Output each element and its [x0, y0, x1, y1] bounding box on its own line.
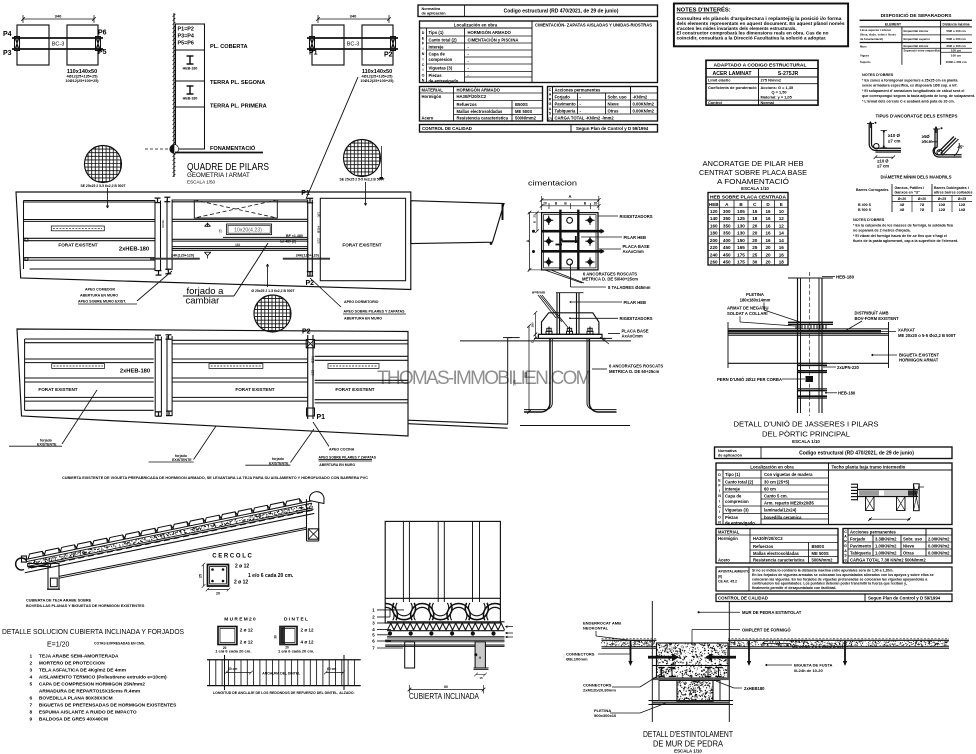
- svg-text:50Ø o 100 cm: 50Ø o 100 cm: [946, 29, 966, 33]
- svg-text:A: A: [725, 202, 729, 207]
- svg-text:F: F: [422, 42, 425, 46]
- svg-text:Tipo (1): Tipo (1): [429, 30, 445, 35]
- svg-text:I: I: [719, 489, 720, 493]
- svg-text:275 N/mm2: 275 N/mm2: [761, 78, 782, 83]
- svg-text:180: 180: [710, 231, 718, 236]
- svg-text:B: B: [564, 202, 567, 206]
- svg-text:E: E: [718, 478, 721, 482]
- svg-text:220: 220: [710, 245, 718, 250]
- svg-text:2 ø 12: 2 ø 12: [301, 628, 314, 633]
- svg-text:I: I: [423, 58, 424, 62]
- svg-text:450: 450: [723, 245, 731, 250]
- svg-text:BIGUETA DE FUSTA: BIGUETA DE FUSTA: [794, 663, 832, 668]
- svg-text:200: 200: [710, 238, 718, 243]
- svg-text:2xHEB-180: 2xHEB-180: [120, 369, 150, 375]
- svg-text:20: 20: [533, 214, 537, 218]
- svg-text:7Ø: 7Ø: [920, 203, 925, 207]
- svg-text:16: 16: [765, 209, 771, 214]
- svg-text:≥5cm: ≥5cm: [922, 139, 933, 144]
- svg-text:TERRA PL. SEGONA: TERRA PL. SEGONA: [210, 80, 265, 86]
- svg-text:* En zones a formigonar superi: * En zones a formigonar superiors a 25x2…: [862, 79, 958, 83]
- svg-text:HA30/F/20/XC3: HA30/F/20/XC3: [753, 536, 783, 541]
- svg-text:20: 20: [765, 260, 771, 265]
- svg-text:1: 1: [30, 654, 33, 660]
- svg-text:no separarà de 2 metres d'alça: no separarà de 2 metres d'alçada.: [853, 229, 911, 233]
- svg-text:150: 150: [737, 238, 745, 243]
- svg-text:CARGA TOTAL 7.38 KN/m2: CARGA TOTAL 7.38 KN/m2 500N/mm2: [850, 558, 926, 563]
- svg-text:340: 340: [55, 14, 62, 19]
- svg-text:180: 180: [531, 322, 535, 327]
- svg-text:0.00KN/m2: 0.00KN/m2: [928, 543, 950, 548]
- svg-text:HEB-180: HEB-180: [183, 97, 198, 101]
- svg-text:P3=P4: P3=P4: [178, 34, 194, 40]
- svg-text:I: I: [423, 68, 424, 72]
- svg-text:-: -: [468, 59, 470, 64]
- svg-text:C: C: [844, 530, 847, 534]
- svg-text:500N/mm2: 500N/mm2: [812, 558, 834, 563]
- svg-text:finalmente,permitir el desapun: finalmente,permitir el desapuntalado con…: [752, 586, 836, 590]
- svg-text:Murs: Murs: [860, 45, 867, 49]
- svg-text:5: 5: [30, 682, 33, 688]
- svg-text:HEB-180: HEB-180: [183, 67, 198, 71]
- svg-text:Distància màxima: Distància màxima: [943, 22, 970, 26]
- svg-text:PILAR HEB: PILAR HEB: [624, 235, 647, 240]
- svg-text:24K(120+120): 24K(120+120): [171, 253, 195, 257]
- svg-text:BC-3: BC-3: [347, 42, 360, 48]
- svg-text:Pavimento: Pavimento: [555, 101, 577, 106]
- svg-text:BOV-FORM EXISTENT: BOV-FORM EXISTENT: [855, 316, 900, 321]
- svg-text:altres barres corbades: altres barres corbades: [934, 191, 973, 195]
- svg-text:Canto 5 cm.: Canto 5 cm.: [764, 494, 788, 499]
- svg-text:B500S: B500S: [812, 544, 825, 549]
- svg-text:1.00KN/m2: 1.00KN/m2: [875, 543, 897, 548]
- svg-text:175: 175: [737, 252, 745, 257]
- svg-text:≥7 cm: ≥7 cm: [888, 139, 901, 144]
- svg-text:M U R E M 2 0: M U R E M 2 0: [224, 617, 256, 623]
- svg-text:continuacion los apuntalados.: continuacion los apuntalados. Los puntal…: [752, 582, 907, 586]
- svg-text:(7): (7): [548, 117, 552, 121]
- svg-text:C: C: [549, 88, 552, 92]
- svg-text:muro: muro: [161, 220, 165, 228]
- svg-text:Ganxos, Patilles i: Ganxos, Patilles i: [895, 186, 925, 190]
- svg-text:APUNTALAMIENTO: APUNTALAMIENTO: [718, 570, 750, 574]
- svg-text:DISTRIBUÏT AMB: DISTRIBUÏT AMB: [855, 311, 889, 316]
- svg-text:DE MUR DE PEDRA: DE MUR DE PEDRA: [653, 740, 723, 749]
- svg-text:* En la calçaveta de les masse: * En la calçaveta de les masses de formi…: [853, 224, 954, 228]
- svg-text:50Ø o 100 cm: 50Ø o 100 cm: [946, 37, 966, 41]
- svg-text:140: 140: [710, 216, 718, 221]
- svg-text:cimentacion: cimentacion: [528, 179, 577, 188]
- svg-text:Resistencia caracteristica: Resistencia caracteristica: [457, 116, 509, 121]
- svg-text:Refuerzos: Refuerzos: [753, 544, 774, 549]
- svg-text:14: 14: [779, 231, 785, 236]
- svg-text:laminada/12x24): laminada/12x24): [764, 508, 797, 513]
- svg-text:FONAMENTACIÓ: FONAMENTACIÓ: [210, 144, 256, 152]
- svg-text:Normativa: Normativa: [422, 7, 441, 11]
- svg-text:FORAT EXISTENT: FORAT EXISTENT: [335, 387, 374, 392]
- svg-text:DETALL D'ESTINTOLAMENT: DETALL D'ESTINTOLAMENT: [643, 730, 733, 739]
- svg-text:ADAPTADO A CODIGO ESTRUCTUR: ADAPTADO A CODIGO ESTRUCTURAL: [714, 62, 807, 68]
- svg-text:AxAxCmm: AxAxCmm: [623, 249, 644, 254]
- svg-text:-: -: [580, 94, 582, 99]
- svg-text:Tabiqueria: Tabiqueria: [555, 108, 577, 113]
- svg-text:160: 160: [710, 223, 718, 228]
- svg-text:350: 350: [723, 216, 731, 221]
- svg-text:Viguetas (3): Viguetas (3): [725, 508, 749, 513]
- svg-text:2xHEB180: 2xHEB180: [744, 686, 765, 691]
- svg-text:Intereje: Intereje: [725, 486, 741, 491]
- svg-text:TELA ASFALTICA DE 4Kg/m2 DE 4m: TELA ASFALTICA DE 4Kg/m2 DE 4mm: [39, 668, 126, 674]
- svg-text:18: 18: [779, 260, 785, 265]
- svg-text:1: 1: [372, 608, 375, 613]
- svg-text:2 ø 12: 2 ø 12: [240, 628, 253, 633]
- svg-text:compresion: compresion: [429, 57, 453, 62]
- svg-text:P6: P6: [98, 30, 107, 37]
- svg-text:Acciones permanentes: Acciones permanentes: [850, 530, 897, 535]
- svg-text:HEB SOBRE PLACA CENTRADA: HEB SOBRE PLACA CENTRADA: [710, 194, 787, 199]
- svg-text:Mallas electrosoldadas: Mallas electrosoldadas: [753, 551, 800, 556]
- svg-text:Mallas electrosoldadas: Mallas electrosoldadas: [457, 109, 504, 114]
- svg-text:MUR DE PEDRA ESTINTOLAT: MUR DE PEDRA ESTINTOLAT: [742, 610, 802, 615]
- svg-text:400: 400: [723, 238, 731, 243]
- svg-text:D: D: [718, 473, 721, 477]
- svg-text:CUBIERTA INCLINADA: CUBIERTA INCLINADA: [409, 692, 480, 701]
- svg-text:10Ø12(25+100+25): 10Ø12(25+100+25): [360, 79, 394, 83]
- svg-text:-: -: [468, 44, 470, 49]
- svg-text:5: 5: [372, 632, 375, 637]
- svg-text:GEOMETRIA I ARMAT: GEOMETRIA I ARMAT: [187, 172, 250, 179]
- svg-text:Tipo (1): Tipo (1): [725, 472, 741, 477]
- svg-text:Capa de: Capa de: [429, 52, 446, 57]
- svg-text:Nieve: Nieve: [903, 543, 915, 548]
- svg-text:260: 260: [710, 260, 718, 265]
- svg-text:XARXAT: XARXAT: [898, 328, 915, 333]
- svg-text:14: 14: [779, 238, 785, 243]
- svg-text:Segun Plan de Control y D 59/1: Segun Plan de Control y D 59/1994: [576, 126, 649, 131]
- svg-text:CAPA DE COMPRESION HORMIGON 25: CAPA DE COMPRESION HORMIGON 25N/mm2: [39, 682, 145, 688]
- svg-text:12: 12: [779, 216, 785, 221]
- svg-text:B 500 S: B 500 S: [858, 208, 872, 212]
- svg-text:HORMIGÓN ARMADO: HORMIGÓN ARMADO: [457, 88, 501, 93]
- svg-text:240: 240: [710, 252, 718, 257]
- svg-text:3: 3: [372, 621, 375, 626]
- svg-text:Ø8L100mm: Ø8L100mm: [566, 657, 588, 662]
- svg-text:Separació entre emparrillats: Separació entre emparrillats: [904, 49, 942, 53]
- svg-text:A: A: [549, 107, 552, 111]
- svg-text:60 cm: 60 cm: [228, 667, 237, 671]
- svg-text:0.00KN/m2: 0.00KN/m2: [633, 108, 655, 113]
- svg-text:S-275JR: S-275JR: [778, 71, 799, 77]
- svg-text:ANCORATGE DE PILAR HEB: ANCORATGE DE PILAR HEB: [703, 159, 804, 168]
- svg-text:20: 20: [765, 245, 771, 250]
- svg-text:20: 20: [765, 252, 771, 257]
- svg-text:CONTROL DE CALIDAD: CONTROL DE CALIDAD: [718, 596, 768, 601]
- svg-text:ESCALA 1/10: ESCALA 1/10: [741, 186, 769, 191]
- svg-text:3.38KN/m2: 3.38KN/m2: [875, 536, 897, 541]
- svg-text:I: I: [423, 47, 424, 51]
- svg-text:BOVEDILLAS PLANAS Y BIGUETA: BOVEDILLAS PLANAS Y BIGUETAS DE HORMIGON…: [26, 604, 145, 608]
- svg-text:16: 16: [765, 216, 771, 221]
- svg-text:175: 175: [737, 260, 745, 265]
- svg-text:2xM12b/20,80mm: 2xM12b/20,80mm: [583, 688, 616, 693]
- svg-text:600: 600: [524, 372, 528, 378]
- svg-text:-: -: [580, 101, 582, 106]
- svg-text:0L24h de 10-20: 0L24h de 10-20: [794, 668, 823, 673]
- svg-text:9: 9: [479, 656, 481, 660]
- svg-text:E=1/20: E=1/20: [47, 642, 69, 649]
- svg-text:Hormigón: Hormigón: [422, 94, 442, 99]
- svg-text:AISLAMIENTO TERMICO (Poliestir: AISLAMIENTO TERMICO (Poliestireno extrui…: [39, 675, 167, 681]
- svg-text:450: 450: [723, 252, 731, 257]
- svg-text:APEO SOBRE PILARES Y ZAPATAS: APEO SOBRE PILARES Y ZAPATAS: [319, 455, 377, 459]
- svg-text:PILAR HEB: PILAR HEB: [624, 300, 647, 305]
- svg-text:A: A: [844, 549, 847, 553]
- svg-text:D: D: [422, 31, 425, 35]
- svg-text:FORAT EXISTENT: FORAT EXISTENT: [38, 387, 77, 392]
- svg-text:sense armadura específica, es: sense armadura específica, es disposarà …: [862, 84, 957, 88]
- svg-text:ME 500S: ME 500S: [812, 551, 829, 556]
- svg-text:ESCALA 1/10: ESCALA 1/10: [792, 439, 820, 444]
- svg-text:HORMIGÓN ARMADO: HORMIGÓN ARMADO: [468, 30, 512, 35]
- svg-text:Llosa superior i inferior: Llosa superior i inferior: [860, 28, 892, 32]
- svg-text:350: 350: [723, 231, 731, 236]
- svg-text:Refuerzos: Refuerzos: [457, 102, 478, 107]
- svg-text:ANCHURA DEL DINTEL: ANCHURA DEL DINTEL: [262, 672, 300, 676]
- svg-text:N: N: [422, 52, 425, 56]
- svg-text:Emparrillat superior: Emparrillat superior: [904, 37, 931, 41]
- svg-text:4: 4: [30, 675, 33, 681]
- svg-text:SE 25x25 2 5-5 6x2,2 B 500T: SE 25x25 2 5-5 6x2,2 B 500T: [80, 184, 126, 188]
- svg-text:14Ø: 14Ø: [959, 208, 966, 212]
- svg-text:DISPOSICIÓ DE SEPARADORS: DISPOSICIÓ DE SEPARADORS: [881, 11, 953, 19]
- svg-text:de aplicación: de aplicación: [718, 454, 743, 458]
- svg-text:30Ø o 100 cm: 30Ø o 100 cm: [946, 44, 966, 48]
- svg-text:Codigo estructural (RD 470/202: Codigo estructural (RD 470/2021, de 29 d…: [504, 9, 619, 15]
- svg-text:BF ×1,480: BF ×1,480: [286, 234, 303, 238]
- svg-text:Ø>25: Ø>25: [958, 197, 967, 201]
- svg-text:25: 25: [219, 229, 223, 233]
- svg-text:CONTROL DE CALIDAD: CONTROL DE CALIDAD: [422, 126, 472, 131]
- svg-text:ABERTURA EN MURO: ABERTURA EN MURO: [344, 317, 382, 321]
- svg-text:105: 105: [737, 209, 745, 214]
- svg-text:I: I: [719, 500, 720, 504]
- svg-text:4Ø: 4Ø: [900, 203, 905, 207]
- svg-text:Ø>20: Ø>20: [918, 197, 927, 201]
- svg-text:DETALL D'UNIÓ DE JASSERES: DETALL D'UNIÓ DE JASSERES I PILARS: [734, 420, 879, 429]
- svg-text:Viguetas (3): Viguetas (3): [429, 66, 453, 71]
- svg-text:Localización en obra: Localización en obra: [454, 23, 498, 28]
- svg-text:25: 25: [199, 574, 203, 578]
- svg-text:2xHEB-180: 2xHEB-180: [119, 247, 149, 253]
- svg-text:APEO COCINA: APEO COCINA: [329, 448, 355, 452]
- svg-text:NEOKONTAL: NEOKONTAL: [583, 626, 609, 631]
- svg-text:HEB: HEB: [311, 356, 315, 364]
- svg-text:Emparrillat inferior: Emparrillat inferior: [904, 44, 930, 48]
- svg-text:B: B: [555, 202, 558, 206]
- svg-text:P2: P2: [384, 52, 393, 59]
- svg-text:FORAT EXISTENT: FORAT EXISTENT: [235, 387, 274, 392]
- svg-text:Suports: Suports: [860, 60, 871, 64]
- svg-text:CUBIERTA EXISTENTE DE VIGUETA: CUBIERTA EXISTENTE DE VIGUETA PREFABRICA…: [62, 475, 368, 480]
- svg-text:100 cm: 100 cm: [951, 54, 962, 58]
- svg-text:Ø<25: Ø<25: [938, 197, 947, 201]
- svg-text:10Ø: 10Ø: [939, 203, 946, 207]
- svg-text:FORAT EXISTENT: FORAT EXISTENT: [58, 243, 97, 248]
- svg-text:-: -: [468, 66, 470, 71]
- svg-text:C: C: [718, 505, 721, 509]
- svg-text:-KN/m2: -KN/m2: [633, 94, 648, 99]
- svg-text:BALDOSA DE GRES 40X40CM: BALDOSA DE GRES 40X40CM: [39, 717, 108, 723]
- svg-text:Forjado: Forjado: [850, 536, 866, 541]
- svg-text:2 ø 12: 2 ø 12: [240, 640, 253, 645]
- svg-text:Acero: Acero: [718, 558, 730, 563]
- svg-text:NOTES D'INTERÉS:: NOTES D'INTERÉS:: [677, 6, 731, 14]
- svg-text:A: A: [549, 93, 552, 97]
- svg-text:Limit elàstic: Limit elàstic: [708, 78, 731, 83]
- svg-text:Forjado: Forjado: [555, 94, 571, 99]
- svg-text:R: R: [844, 539, 847, 543]
- svg-text:Ø 25x25 2 1-5 6x2,2 B 500T: Ø 25x25 2 1-5 6x2,2 B 500T: [251, 289, 295, 293]
- svg-text:de fonamentació): de fonamentació): [860, 37, 883, 41]
- svg-text:ME 20x20 o 5-5 6x2,2 B 500T: ME 20x20 o 5-5 6x2,2 B 500T: [792, 644, 847, 649]
- svg-text:100Ø o 200 cm: 100Ø o 200 cm: [945, 60, 966, 64]
- svg-text:10: 10: [779, 209, 785, 214]
- svg-text:P2: P2: [302, 329, 311, 336]
- svg-text:7: 7: [30, 703, 33, 709]
- svg-text:colocaran las viguetas. En los: colocaran las viguetas. En los forjados …: [752, 577, 927, 581]
- svg-text:METRICA D. DE 60+25cm: METRICA D. DE 60+25cm: [609, 369, 660, 374]
- svg-text:HA30/F/20/XC2: HA30/F/20/XC2: [457, 94, 487, 99]
- svg-text:9: 9: [30, 717, 33, 723]
- svg-text:MORTERO DE PROTECCION: MORTERO DE PROTECCION: [39, 661, 105, 667]
- svg-text:APEO SOBRE MURO EXIST.: APEO SOBRE MURO EXIST.: [78, 300, 126, 304]
- svg-text:Ganxos en "U": Ganxos en "U": [895, 191, 921, 195]
- svg-text:DIÀMETRE MÍNIM DELS MANDRIL: DIÀMETRE MÍNIM DELS MANDRILS: [881, 173, 952, 180]
- svg-text:TIPUS D'ANCORATGE DELS ESTRE: TIPUS D'ANCORATGE DELS ESTREPS: [876, 114, 958, 119]
- svg-text:En los forjados de viguetas ar: En los forjados de viguetas armadas se c…: [752, 573, 934, 577]
- svg-text:12Ø: 12Ø: [939, 208, 946, 212]
- svg-text:Barres Corrugades: Barres Corrugades: [856, 188, 889, 192]
- svg-text:CUBIERTA DE TEJA ARABE SOB: CUBIERTA DE TEJA ARABE SOBRE: [26, 599, 92, 603]
- svg-text:125: 125: [737, 216, 745, 221]
- svg-text:20: 20: [752, 231, 758, 236]
- svg-text:Codigo estructural (RD 470/202: Codigo estructural (RD 470/2021, de 29 d…: [799, 451, 914, 457]
- svg-text:APEO DORMITORIO: APEO DORMITORIO: [344, 300, 379, 304]
- svg-text:O: O: [718, 515, 721, 519]
- svg-text:R: R: [549, 97, 552, 101]
- svg-text:Nieve: Nieve: [608, 101, 620, 106]
- svg-text:10Ø12(25+100+25): 10Ø12(25+100+25): [65, 79, 99, 83]
- svg-text:4Ø: 4Ø: [900, 208, 905, 212]
- svg-text:Emparrillat inferior: Emparrillat inferior: [904, 29, 930, 33]
- svg-text:NOTES D'OBRES: NOTES D'OBRES: [853, 218, 885, 222]
- svg-text:30 cm (25+5): 30 cm (25+5): [764, 479, 790, 484]
- svg-text:30: 30: [274, 635, 278, 639]
- svg-text:8: 8: [30, 710, 33, 716]
- svg-text:25: 25: [752, 245, 758, 250]
- svg-text:30: 30: [752, 260, 758, 265]
- svg-text:16: 16: [779, 245, 785, 250]
- svg-text:BOVEDILLA PLANA 80X30X3CM: BOVEDILLA PLANA 80X30X3CM: [39, 696, 113, 702]
- svg-text:TEJA ARABE SEMI-AMORTERADA: TEJA ARABE SEMI-AMORTERADA: [39, 654, 119, 660]
- svg-text:Techo planta baja tramo interm: Techo planta baja tramo intermedio: [832, 465, 906, 470]
- svg-text:18: 18: [752, 216, 758, 221]
- svg-text:15: 15: [752, 209, 758, 214]
- svg-text:A: A: [844, 535, 847, 539]
- svg-text:60 cm: 60 cm: [327, 667, 336, 671]
- svg-text:S: S: [844, 554, 847, 558]
- svg-text:10x20(4.23): 10x20(4.23): [234, 228, 262, 234]
- svg-text:6: 6: [372, 639, 375, 644]
- svg-text:ARMAT DE NEGATIU: ARMAT DE NEGATIU: [727, 306, 768, 311]
- svg-text:APEO COMEDOR: APEO COMEDOR: [85, 288, 115, 292]
- svg-text:a=6mm: a=6mm: [532, 291, 546, 295]
- svg-text:N: N: [718, 494, 721, 498]
- svg-text:≤7 cm: ≤7 cm: [877, 163, 889, 168]
- svg-text:RIGIDITZADORS: RIGIDITZADORS: [620, 214, 653, 219]
- svg-text:P1=P2: P1=P2: [178, 27, 194, 33]
- svg-text:G: G: [844, 544, 847, 548]
- svg-text:TERRA PL. PRIMERA: TERRA PL. PRIMERA: [210, 104, 267, 110]
- svg-text:16: 16: [765, 238, 771, 243]
- svg-text:CENTRAT SOBRE PLACA BASE: CENTRAT SOBRE PLACA BASE: [699, 168, 807, 177]
- svg-text:AxAxCmm: AxAxCmm: [622, 334, 643, 339]
- svg-text:484: 484: [235, 243, 241, 247]
- svg-text:-: -: [580, 108, 582, 113]
- svg-text:NOTES D'OBRES: NOTES D'OBRES: [862, 73, 894, 77]
- svg-text:B: B: [533, 220, 537, 223]
- svg-text:1 e/o 6 cada 20 cm.: 1 e/o 6 cada 20 cm.: [248, 573, 294, 579]
- svg-text:N: N: [422, 79, 425, 83]
- svg-text:450: 450: [723, 260, 731, 265]
- svg-text:25: 25: [752, 252, 758, 257]
- svg-text:N: N: [718, 521, 721, 525]
- svg-text:500x300x10: 500x300x10: [594, 713, 617, 718]
- svg-text:Segun Plan de Control y D 59/1: Segun Plan de Control y D 59/1994: [868, 596, 941, 601]
- svg-text:20: 20: [752, 223, 758, 228]
- svg-text:C E R C O L C: C E R C O L C: [212, 554, 252, 560]
- svg-text:Sobr. uso: Sobr. uso: [903, 536, 923, 541]
- svg-text:B500S: B500S: [515, 102, 528, 107]
- svg-text:60: 60: [444, 685, 448, 689]
- svg-text:60 cm: 60 cm: [764, 486, 776, 491]
- svg-text:de aplicación: de aplicación: [422, 12, 447, 16]
- svg-text:XARXAT: XARXAT: [792, 639, 809, 644]
- svg-text:500: 500: [512, 380, 516, 386]
- svg-text:130: 130: [737, 231, 745, 236]
- svg-text:P4: P4: [3, 31, 12, 38]
- svg-text:Control: Control: [708, 100, 722, 105]
- svg-text:15: 15: [479, 676, 483, 680]
- svg-text:Otras: Otras: [608, 108, 620, 113]
- svg-text:B 400 S: B 400 S: [858, 203, 872, 207]
- svg-text:LONGITUD DE ANCLAJE DE LOS RE: LONGITUD DE ANCLAJE DE LOS REDONDOS DE R…: [213, 691, 355, 695]
- svg-text:6: 6: [30, 696, 33, 702]
- svg-text:20: 20: [752, 238, 758, 243]
- svg-text:ACER LAMINAT: ACER LAMINAT: [712, 71, 752, 77]
- svg-text:BIGUETAS DE PRETENSADAS DE HOR: BIGUETAS DE PRETENSADAS DE HORMIGON EXIS…: [39, 703, 177, 709]
- svg-text:0.00KN/m2: 0.00KN/m2: [928, 550, 950, 555]
- svg-text:6 ANCORATGES ROSCATS: 6 ANCORATGES ROSCATS: [609, 364, 663, 369]
- svg-text:Capa de: Capa de: [725, 494, 742, 499]
- svg-text:12: 12: [779, 223, 785, 228]
- svg-text:P3: P3: [3, 50, 12, 57]
- svg-text:-: -: [468, 52, 470, 57]
- svg-text:100 cm: 100 cm: [951, 49, 962, 53]
- svg-text:16: 16: [765, 223, 771, 228]
- svg-text:P1: P1: [309, 50, 318, 57]
- svg-text:ESPUMA AISLANTE A RUIDO DE IMP: ESPUMA AISLANTE A RUIDO DE IMPACTO: [39, 710, 137, 716]
